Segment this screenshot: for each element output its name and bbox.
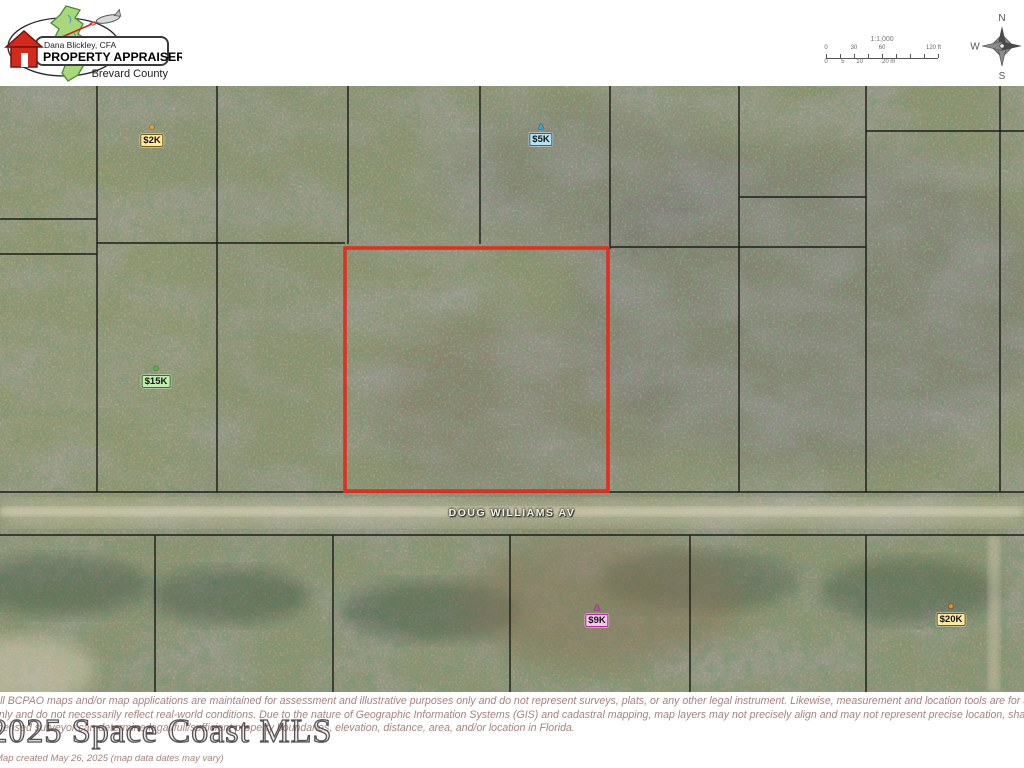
scale-tick-label: 30	[851, 45, 858, 51]
scale-tick-label: 0	[824, 45, 827, 51]
scale-tick-label: 10	[856, 59, 863, 65]
triangle-pin-icon: ▲	[592, 603, 602, 613]
price-label: $9K	[585, 614, 608, 627]
bcpao-logo: Dana Blickley, CFA PROPERTY APPRAISER Br…	[2, 3, 182, 85]
scale-tick-mark	[910, 54, 911, 58]
price-marker-9k[interactable]: ▲$9K	[585, 603, 608, 627]
compass-west: W	[970, 42, 980, 53]
scale-tick-mark	[868, 54, 869, 58]
aerial-map-canvas: DOUG WILLIAMS AV ●$2K▲$5K●$15K▲$9K●$20K	[0, 86, 1024, 692]
footer-band: All BCPAO maps and/or map applications a…	[0, 692, 1024, 768]
scale-ratio: 1:1,000	[826, 36, 938, 43]
rocket-icon	[88, 9, 122, 26]
scale-tick-mark	[826, 54, 827, 58]
circle-pin-icon: ●	[948, 602, 954, 612]
circle-pin-icon: ●	[153, 364, 159, 374]
price-label: $20K	[937, 613, 966, 626]
price-marker-5k[interactable]: ▲$5K	[529, 122, 552, 146]
price-markers-layer: ●$2K▲$5K●$15K▲$9K●$20K	[0, 86, 1024, 692]
price-label: $5K	[529, 133, 552, 146]
compass-north: N	[998, 13, 1005, 24]
appraiser-name: Dana Blickley, CFA	[44, 40, 116, 50]
price-label: $2K	[140, 134, 163, 147]
map-created-note: Map created May 26, 2025 (map data dates…	[0, 753, 224, 764]
scale-tick-label: 5	[841, 59, 844, 65]
triangle-pin-icon: ▲	[536, 122, 546, 132]
scale-tick-mark	[882, 54, 883, 58]
scale-tick-mark	[854, 54, 855, 58]
header-band: Dana Blickley, CFA PROPERTY APPRAISER Br…	[0, 0, 1024, 86]
scale-tick-label: 20 m	[882, 59, 895, 65]
price-label: $15K	[142, 375, 171, 388]
circle-pin-icon: ●	[149, 123, 155, 133]
scale-tick-label: 60	[879, 45, 886, 51]
price-marker-2k[interactable]: ●$2K	[140, 123, 163, 147]
scale-tick-mark	[896, 54, 897, 58]
scale-tick-mark	[840, 54, 841, 58]
scale-tick-mark	[924, 54, 925, 58]
mls-watermark: © 2025 Space Coast MLS	[0, 714, 332, 750]
scale-tick-mark	[938, 54, 939, 58]
scale-tick-label: 120 ft	[926, 45, 941, 51]
county-name: Brevard County	[92, 68, 169, 80]
scale-bar: 1:1,000 03060120 ft 051020 m	[826, 36, 938, 67]
scale-feet-labels: 03060120 ft	[826, 45, 938, 53]
price-marker-20k[interactable]: ●$20K	[937, 602, 966, 626]
scale-tick-label: 0	[824, 59, 827, 65]
compass-rose-icon: N S W E	[958, 8, 1024, 86]
appraiser-title: PROPERTY APPRAISER	[43, 50, 182, 64]
scale-meters-labels: 051020 m	[826, 59, 938, 67]
compass-south: S	[999, 71, 1006, 82]
price-marker-15k[interactable]: ●$15K	[142, 364, 171, 388]
disclaimer-line: All BCPAO maps and/or map applications a…	[0, 695, 1024, 709]
